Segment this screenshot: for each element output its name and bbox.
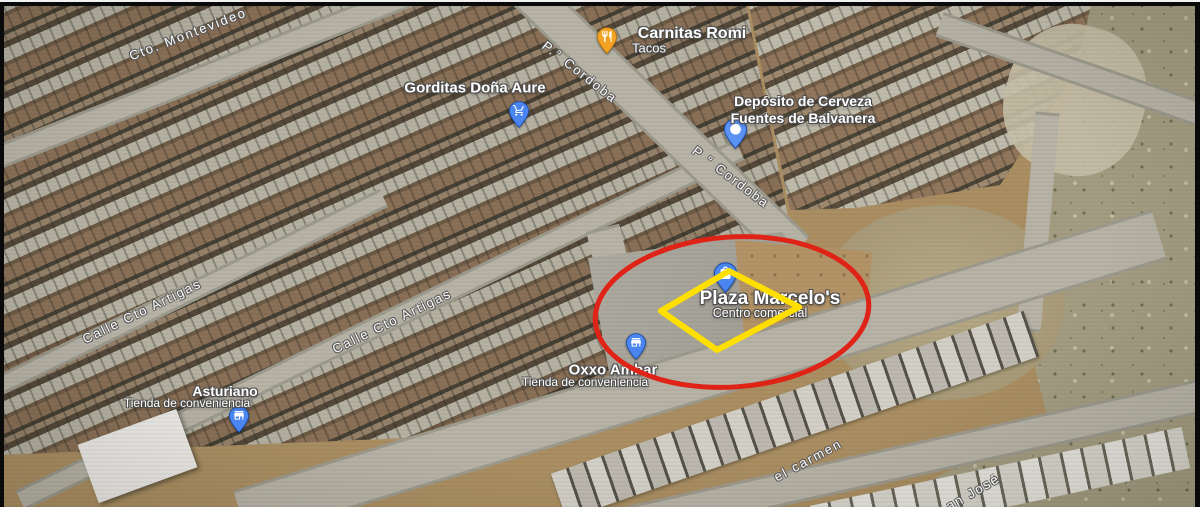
shopping-cart-pin-icon xyxy=(508,101,530,128)
store-pin-icon xyxy=(228,406,250,433)
carnitas-category: Tacos xyxy=(632,41,666,56)
asturiano-category: Tienda de conveniencia xyxy=(124,396,250,410)
plaza-category: Centro comercial xyxy=(713,306,807,320)
gorditas-pin[interactable] xyxy=(508,101,530,128)
carnitas-pin[interactable] xyxy=(596,27,618,54)
restaurant-pin-icon xyxy=(596,27,618,54)
frame-left-bar xyxy=(0,0,4,507)
store-pin-icon xyxy=(625,333,647,360)
frame-right-bar xyxy=(1195,0,1200,507)
oxxo-pin[interactable] xyxy=(625,333,647,360)
frame-top-bar xyxy=(0,2,1200,6)
deposito-label-line1[interactable]: Depósito de Cerveza xyxy=(734,93,872,109)
gorditas-label[interactable]: Gorditas Doña Aure xyxy=(404,80,545,97)
deposito-label-line2[interactable]: Fuentes de Balvanera xyxy=(731,110,876,126)
frame-top-white-line xyxy=(0,0,1200,2)
satellite-map-canvas[interactable]: Carnitas Romi Tacos Gorditas Doña Aure D… xyxy=(0,0,1200,507)
asturiano-pin[interactable] xyxy=(228,406,250,433)
oxxo-category: Tienda de conveniencia xyxy=(522,375,648,389)
